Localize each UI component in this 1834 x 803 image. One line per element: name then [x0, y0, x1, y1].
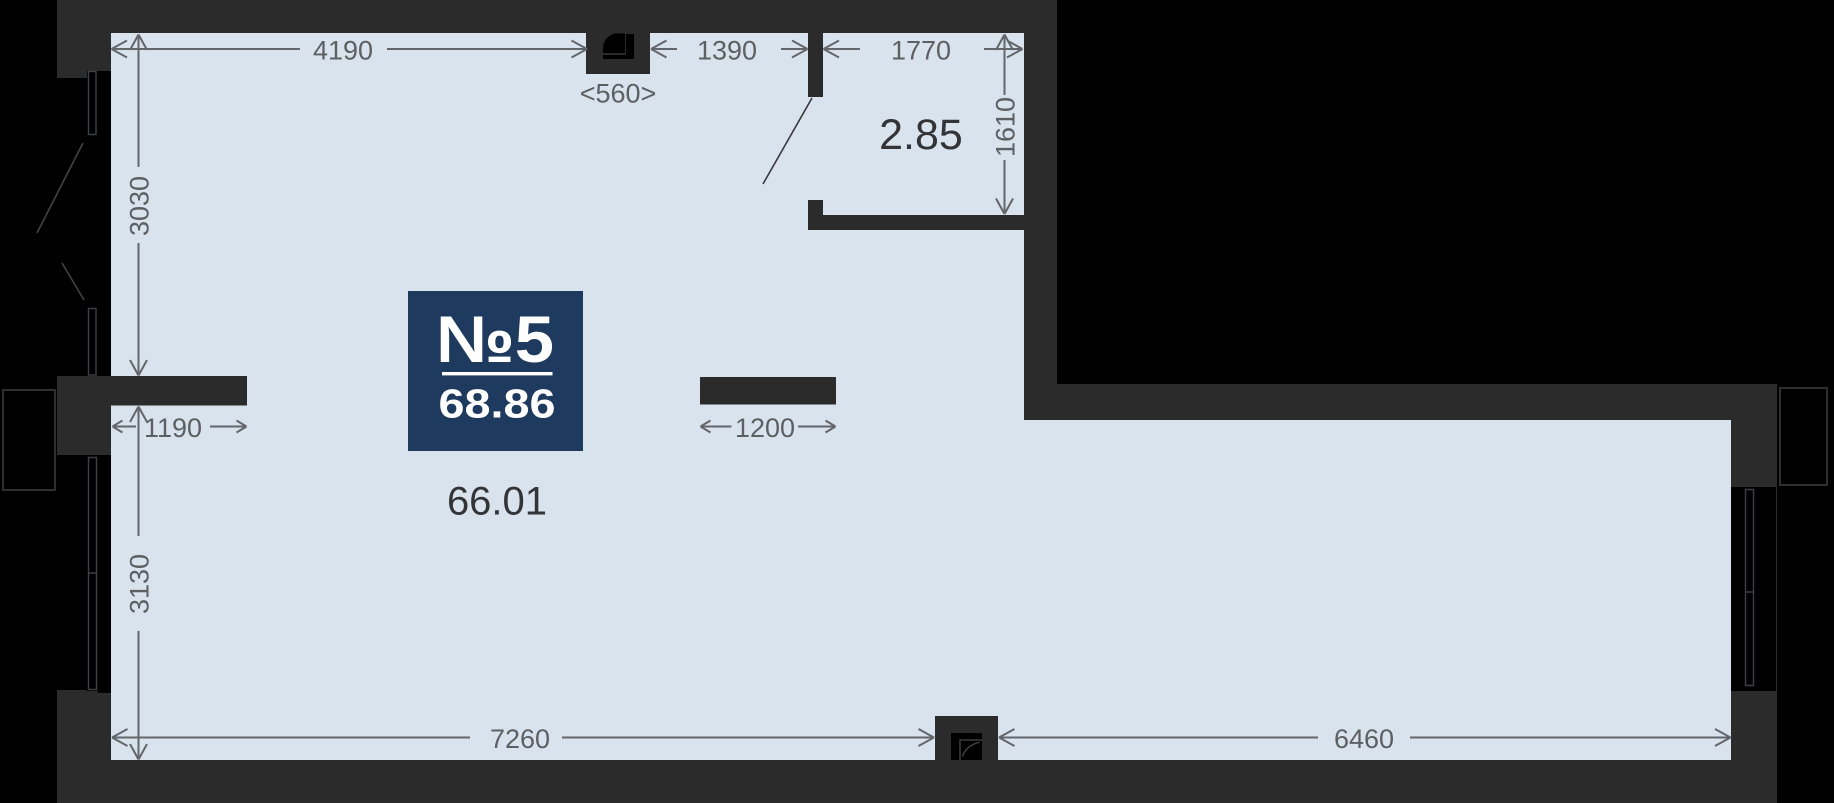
svg-text:<560>: <560> — [580, 78, 657, 108]
svg-text:7260: 7260 — [490, 724, 550, 754]
svg-text:№5: №5 — [436, 302, 554, 376]
svg-text:66.01: 66.01 — [447, 480, 547, 524]
svg-text:6460: 6460 — [1334, 724, 1394, 754]
svg-text:1190: 1190 — [144, 413, 202, 443]
svg-text:4190: 4190 — [313, 35, 373, 65]
svg-text:1770: 1770 — [891, 35, 951, 65]
svg-text:2.85: 2.85 — [879, 111, 963, 159]
svg-text:1610: 1610 — [990, 97, 1020, 157]
svg-text:3030: 3030 — [124, 176, 154, 236]
svg-text:1200: 1200 — [735, 413, 795, 443]
svg-text:1390: 1390 — [697, 35, 757, 65]
svg-text:3130: 3130 — [124, 554, 154, 614]
svg-text:68.86: 68.86 — [439, 381, 556, 427]
